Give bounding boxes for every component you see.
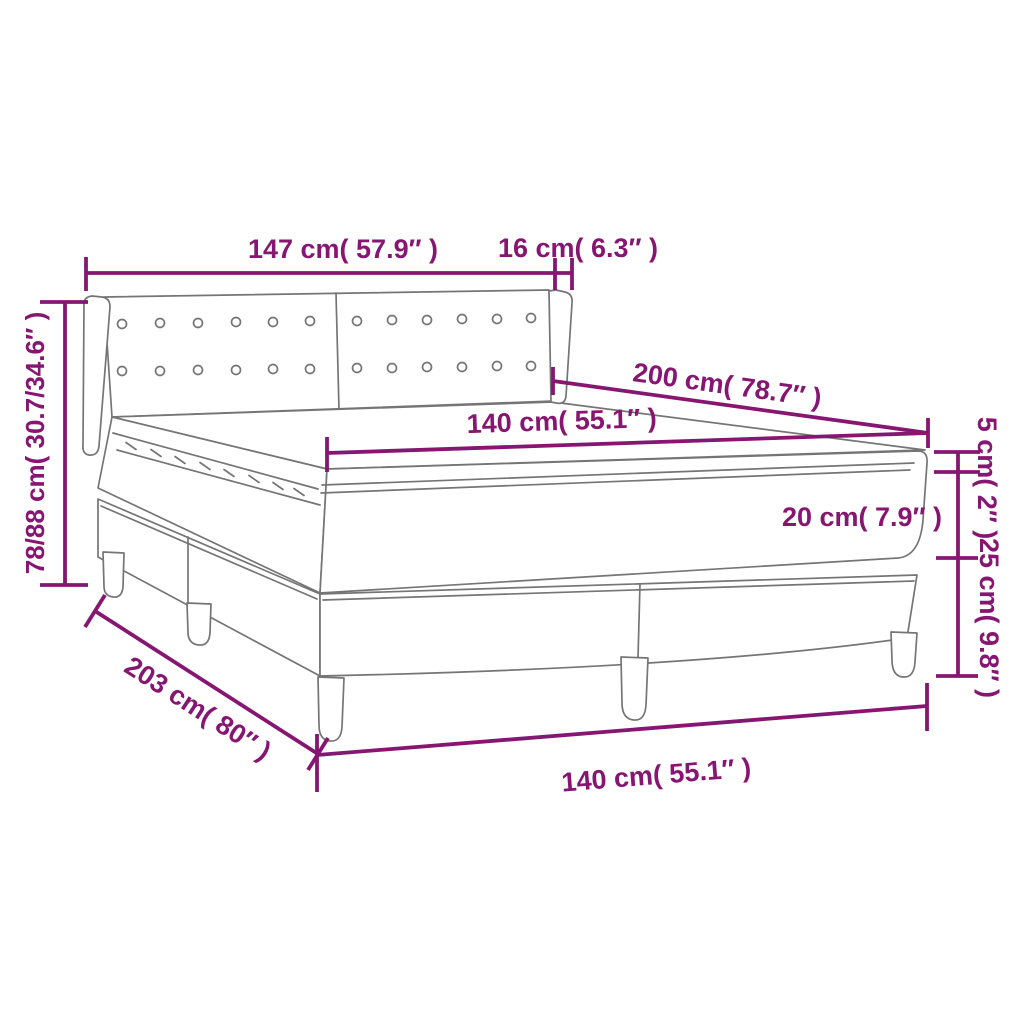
dimension-headboard-width: 147 cm( 57.9″ ) 16 cm( 6.3″ ): [86, 233, 658, 291]
leg-mid-left: [187, 603, 211, 645]
dimension-label-mattress-thickness: 20 cm( 7.9″ ): [782, 502, 942, 532]
dimension-label-base-width: 140 cm( 55.1″ ): [560, 752, 752, 797]
headboard-wing-left: [83, 296, 110, 455]
leg-front-left: [318, 677, 344, 741]
dimension-label-mattress-width: 140 cm( 55.1″ ): [466, 403, 657, 439]
dimension-label-overall-height: 78/88 cm( 30.7/34.6″ ): [20, 312, 50, 575]
headboard-panel: [104, 290, 554, 417]
dimension-label-wing-depth: 16 cm( 6.3″ ): [498, 233, 658, 263]
dimension-label-base-height: 25 cm( 9.8″ ): [974, 538, 1004, 698]
leg-front-middle: [621, 657, 648, 720]
dimension-label-headboard-width: 147 cm( 57.9″ ): [248, 234, 438, 264]
leg-back-left: [103, 552, 124, 597]
dimension-label-topper-thickness: 5 cm( 2″ ): [972, 417, 1002, 539]
dimension-overall-height: 78/88 cm( 30.7/34.6″ ): [20, 302, 88, 585]
bed-dimension-diagram: 147 cm( 57.9″ ) 16 cm( 6.3″ ) 78/88 cm( …: [0, 0, 1024, 1024]
leg-front-right: [891, 632, 917, 677]
dimension-label-overall-length: 203 cm( 80″ ): [119, 651, 276, 767]
